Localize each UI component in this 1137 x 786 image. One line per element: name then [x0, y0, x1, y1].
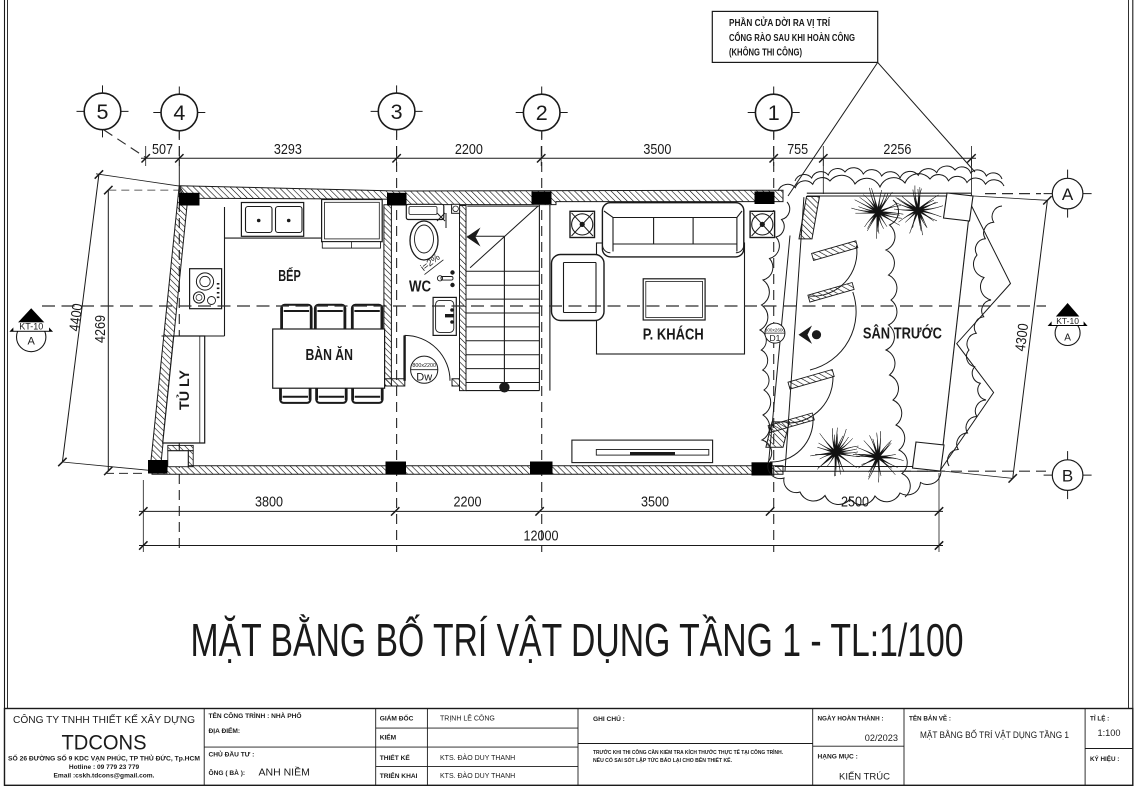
svg-text:P. KHÁCH: P. KHÁCH [643, 325, 704, 344]
svg-text:5: 5 [97, 100, 109, 124]
svg-text:755: 755 [787, 142, 808, 158]
svg-text:3500: 3500 [641, 495, 669, 511]
svg-text:WC: WC [409, 279, 431, 296]
svg-text:3: 3 [391, 100, 403, 124]
svg-text:507: 507 [152, 142, 173, 158]
svg-text:B: B [1062, 466, 1073, 485]
svg-text:2200: 2200 [455, 142, 483, 158]
svg-text:GHI CHÚ :: GHI CHÚ : [593, 714, 625, 723]
svg-text:KTS. ĐÀO DUY THANH: KTS. ĐÀO DUY THANH [440, 771, 515, 780]
svg-text:ANH NIỀM: ANH NIỀM [259, 766, 310, 779]
svg-text:4269: 4269 [93, 315, 109, 343]
svg-text:Hotline : 09 779 23 779: Hotline : 09 779 23 779 [69, 764, 140, 771]
svg-text:MẶT BẰNG BỐ TRÍ VẬT DỤNG TẦNG: MẶT BẰNG BỐ TRÍ VẬT DỤNG TẦNG 1 - TL:1/1… [191, 614, 964, 666]
svg-text:CỔNG RÀO SAU KHI HOÀN CÔNG: CỔNG RÀO SAU KHI HOÀN CÔNG [729, 31, 855, 44]
svg-text:12000: 12000 [524, 529, 559, 545]
svg-text:KT-10: KT-10 [19, 322, 43, 332]
svg-text:2256: 2256 [883, 142, 911, 158]
svg-text:Dw: Dw [416, 372, 432, 384]
svg-text:KIỂM: KIỂM [380, 732, 397, 741]
svg-text:ĐỊA ĐIỂM:: ĐỊA ĐIỂM: [209, 726, 241, 735]
svg-text:800x2200: 800x2200 [412, 363, 436, 369]
svg-text:02/2023: 02/2023 [865, 733, 898, 743]
svg-text:BÀN ĂN: BÀN ĂN [305, 347, 353, 364]
svg-text:TÊN BẢN VẼ :: TÊN BẢN VẼ : [909, 713, 951, 722]
svg-text:KÝ HIỆU :: KÝ HIỆU : [1090, 754, 1119, 763]
svg-text:A: A [28, 336, 36, 348]
svg-text:KTS. ĐÀO DUY THANH: KTS. ĐÀO DUY THANH [440, 753, 515, 762]
svg-text:TRỊNH LÊ CÔNG: TRỊNH LÊ CÔNG [440, 713, 495, 722]
svg-text:1:100: 1:100 [1098, 728, 1121, 738]
svg-text:BẾP: BẾP [278, 268, 301, 285]
svg-text:MẶT BẰNG BỐ TRÍ VẬT DỤNG TẦNG: MẶT BẰNG BỐ TRÍ VẬT DỤNG TẦNG 1 [920, 729, 1069, 740]
svg-text:2: 2 [536, 101, 548, 125]
svg-text:3500: 3500 [643, 142, 671, 158]
svg-text:D1: D1 [769, 333, 780, 343]
svg-text:A: A [1064, 333, 1071, 344]
svg-text:3800: 3800 [255, 495, 283, 511]
svg-text:KT-10: KT-10 [1056, 316, 1079, 326]
svg-text:HẠNG MỤC :: HẠNG MỤC : [818, 753, 858, 760]
svg-text:A: A [1062, 185, 1074, 204]
svg-text:CÔNG TY TNHH THIẾT KẾ XÂY DỰNG: CÔNG TY TNHH THIẾT KẾ XÂY DỰNG [13, 713, 195, 726]
svg-text:1: 1 [768, 101, 780, 125]
svg-text:PHẦN CỬA DỜI RA VỊ TRÍ: PHẦN CỬA DỜI RA VỊ TRÍ [729, 16, 830, 29]
svg-text:TỦ LY: TỦ LY [177, 370, 192, 410]
svg-text:KIẾN TRÚC: KIẾN TRÚC [839, 771, 890, 782]
svg-text:2200: 2200 [454, 495, 482, 511]
svg-text:NGÀY HOÀN THÀNH :: NGÀY HOÀN THÀNH : [818, 713, 884, 722]
svg-text:4: 4 [173, 101, 185, 125]
svg-text:Email :cskh.tdcons@gmail.com.: Email :cskh.tdcons@gmail.com. [54, 773, 155, 780]
svg-text:SÂN TRƯỚC: SÂN TRƯỚC [863, 324, 942, 343]
svg-text:TDCONS: TDCONS [62, 731, 147, 755]
svg-text:TRƯỚC KHI THI CÔNG CẦN KIỂM TR: TRƯỚC KHI THI CÔNG CẦN KIỂM TRA KÍCH THƯ… [593, 748, 783, 756]
svg-text:NẾU CÓ SAI SÓT LẬP TỨC BÁO LẠI: NẾU CÓ SAI SÓT LẬP TỨC BÁO LẠI CHO BÊN T… [593, 756, 732, 764]
svg-text:3293: 3293 [274, 142, 302, 158]
svg-text:TỈ LỆ :: TỈ LỆ : [1090, 713, 1109, 722]
svg-text:(KHÔNG THI CÔNG): (KHÔNG THI CÔNG) [729, 46, 802, 59]
svg-text:800x2600: 800x2600 [765, 327, 786, 332]
svg-text:ÔNG ( BÀ ):: ÔNG ( BÀ ): [209, 768, 246, 777]
svg-text:TRIỂN KHAI: TRIỂN KHAI [380, 771, 418, 780]
